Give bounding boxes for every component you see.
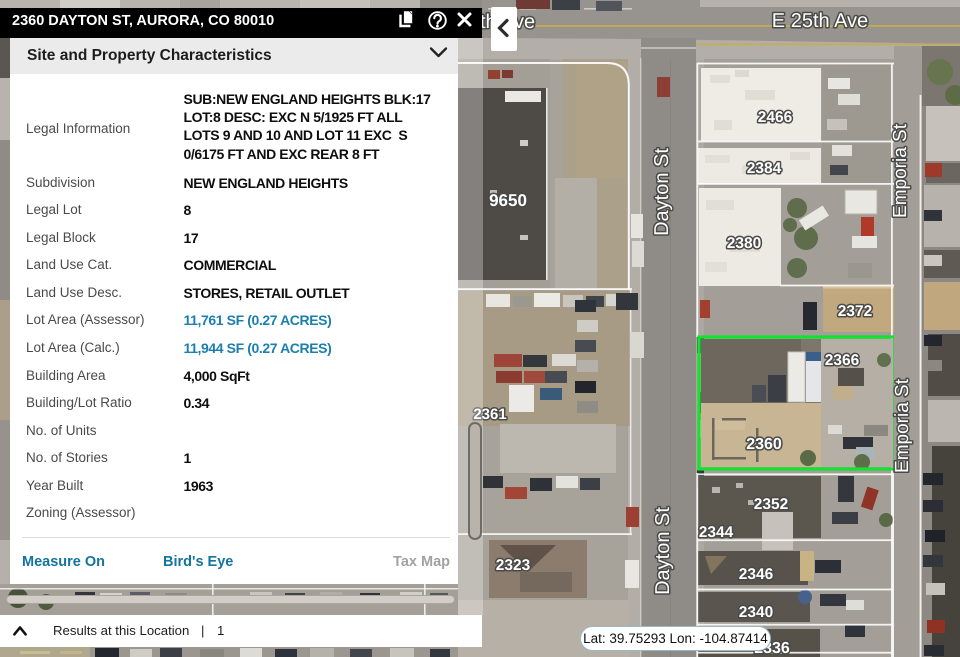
svg-text:2366: 2366 [825, 352, 860, 369]
svg-text:2384: 2384 [747, 160, 782, 177]
svg-text:2352: 2352 [754, 496, 788, 513]
svg-text:2323: 2323 [496, 557, 531, 574]
svg-text:2466: 2466 [758, 109, 793, 126]
svg-text:2360: 2360 [746, 436, 782, 453]
svg-text:Dayton St: Dayton St [651, 148, 673, 236]
svg-text:2346: 2346 [739, 566, 774, 583]
svg-text:2372: 2372 [838, 303, 872, 320]
svg-text:2344: 2344 [699, 524, 734, 541]
svg-text:2380: 2380 [727, 235, 761, 252]
svg-text:E 25th Ave: E 25th Ave [772, 10, 868, 32]
svg-text:9650: 9650 [489, 191, 527, 210]
svg-text:Dayton St: Dayton St [652, 507, 674, 595]
svg-text:Emporia St: Emporia St [890, 123, 911, 218]
svg-text:2340: 2340 [739, 604, 773, 621]
svg-text:Emporia St: Emporia St [892, 378, 913, 473]
